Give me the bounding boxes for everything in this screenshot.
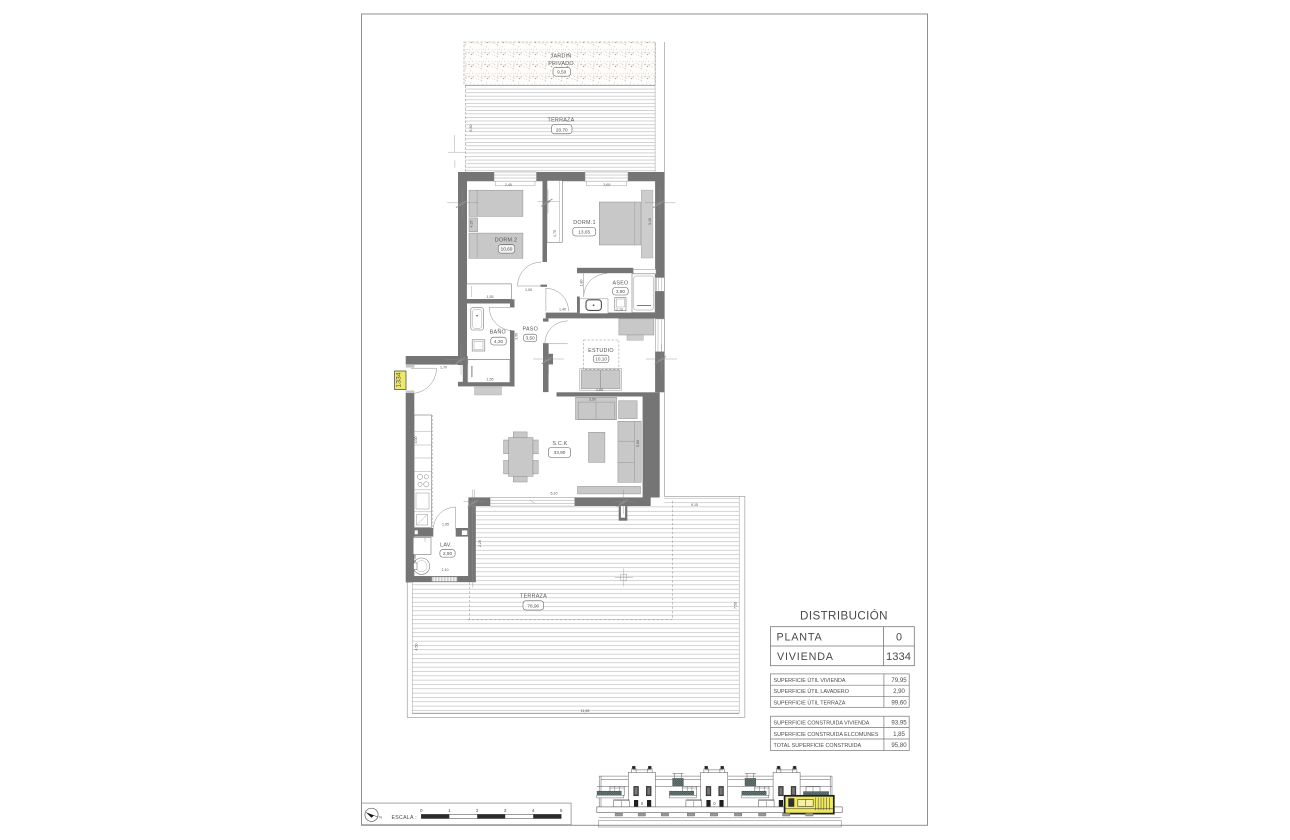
svg-text:SUPERFICIE CONSTRUIDA VIVIENDA: SUPERFICIE CONSTRUIDA VIVIENDA — [774, 720, 870, 726]
svg-text:2,45: 2,45 — [505, 183, 512, 187]
svg-text:9,15: 9,15 — [691, 503, 698, 507]
svg-text:3,90: 3,90 — [616, 289, 626, 294]
svg-text:SUPERFICIE ÚTIL TERRAZA: SUPERFICIE ÚTIL TERRAZA — [774, 699, 846, 706]
svg-text:3: 3 — [504, 808, 507, 813]
svg-text:VIVIENDA: VIVIENDA — [777, 651, 834, 663]
svg-text:1,40: 1,40 — [413, 555, 417, 562]
svg-text:95,80: 95,80 — [891, 742, 907, 749]
svg-text:5: 5 — [560, 808, 563, 813]
svg-text:3,10: 3,10 — [648, 218, 652, 225]
svg-text:2,65: 2,65 — [596, 388, 603, 392]
svg-text:1,55: 1,55 — [487, 295, 494, 299]
svg-text:20,70: 20,70 — [556, 127, 568, 132]
svg-text:6,30: 6,30 — [469, 125, 473, 132]
svg-text:LAV.: LAV. — [440, 543, 452, 549]
svg-text:79,95: 79,95 — [891, 677, 907, 684]
svg-text:3,65: 3,65 — [603, 183, 610, 187]
svg-text:0: 0 — [896, 631, 902, 643]
svg-text:4,35: 4,35 — [470, 221, 474, 228]
svg-text:3,50: 3,50 — [526, 336, 536, 341]
svg-text:93,95: 93,95 — [891, 719, 907, 726]
svg-text:SUPERFICIE ÚTIL LAVADERO: SUPERFICIE ÚTIL LAVADERO — [774, 688, 849, 695]
svg-text:3,50: 3,50 — [514, 333, 518, 340]
svg-text:1334: 1334 — [886, 651, 911, 663]
svg-text:SUPERFICIE ÚTIL VIVIENDA: SUPERFICIE ÚTIL VIVIENDA — [774, 677, 846, 684]
svg-text:11,55: 11,55 — [581, 709, 590, 713]
svg-text:DORM.2: DORM.2 — [495, 238, 517, 244]
svg-text:4,30: 4,30 — [494, 339, 504, 344]
svg-text:4: 4 — [532, 808, 535, 813]
svg-text:1,00: 1,00 — [525, 288, 532, 292]
svg-text:DORM.1: DORM.1 — [573, 220, 595, 226]
svg-text:1,70: 1,70 — [440, 366, 447, 370]
svg-text:1,55: 1,55 — [487, 378, 494, 382]
svg-text:1,85: 1,85 — [893, 731, 905, 738]
svg-text:1,40: 1,40 — [559, 307, 566, 311]
svg-text:1334: 1334 — [396, 372, 403, 387]
svg-text:S.C.K: S.C.K — [552, 441, 567, 447]
svg-text:SUPERFICIE CONSTRUIDA ELCOMUNE: SUPERFICIE CONSTRUIDA ELCOMUNES — [774, 732, 879, 738]
svg-text:1,95: 1,95 — [442, 523, 449, 527]
svg-text:1: 1 — [448, 808, 451, 813]
svg-text:9,50: 9,50 — [557, 70, 567, 75]
svg-text:10,10: 10,10 — [595, 357, 607, 362]
svg-text:99,60: 99,60 — [891, 699, 907, 706]
svg-text:7,50: 7,50 — [733, 602, 737, 609]
svg-text:PRIVADO: PRIVADO — [548, 61, 574, 67]
svg-text:10,60: 10,60 — [501, 247, 513, 252]
svg-text:2: 2 — [476, 808, 479, 813]
svg-text:2,70: 2,70 — [616, 308, 623, 312]
svg-text:4,75: 4,75 — [553, 230, 557, 237]
svg-text:TERRAZA: TERRAZA — [520, 594, 547, 600]
svg-text:0: 0 — [420, 808, 423, 813]
svg-text:TOTAL SUPERFICIE CONSTRUIDA: TOTAL SUPERFICIE CONSTRUIDA — [774, 743, 862, 749]
svg-text:2,20: 2,20 — [478, 540, 482, 547]
svg-text:ESCALA :: ESCALA : — [392, 815, 417, 821]
svg-text:4,50: 4,50 — [414, 644, 418, 651]
svg-text:N: N — [379, 816, 382, 820]
svg-text:5,60: 5,60 — [636, 440, 640, 447]
svg-text:ESTUDIO: ESTUDIO — [588, 348, 614, 354]
svg-text:2,10: 2,10 — [442, 568, 449, 572]
svg-text:78,90: 78,90 — [527, 604, 539, 609]
svg-text:PASO: PASO — [523, 327, 539, 333]
svg-text:13,65: 13,65 — [578, 229, 590, 234]
svg-text:2,90: 2,90 — [443, 551, 453, 556]
svg-text:6,10: 6,10 — [551, 492, 558, 496]
svg-text:33,90: 33,90 — [554, 450, 566, 455]
svg-text:3,00: 3,00 — [414, 437, 418, 444]
svg-text:PLANTA: PLANTA — [777, 631, 823, 643]
svg-text:BAÑO: BAÑO — [490, 329, 506, 336]
svg-text:1,80: 1,80 — [580, 280, 584, 287]
svg-text:3,50: 3,50 — [589, 397, 596, 401]
svg-text:ASEO: ASEO — [613, 281, 629, 287]
svg-text:JARDIN: JARDIN — [551, 54, 572, 60]
svg-text:DISTRIBUCIÓN: DISTRIBUCIÓN — [800, 610, 888, 623]
svg-text:TERRAZA: TERRAZA — [548, 118, 575, 124]
svg-text:2,90: 2,90 — [893, 688, 905, 695]
